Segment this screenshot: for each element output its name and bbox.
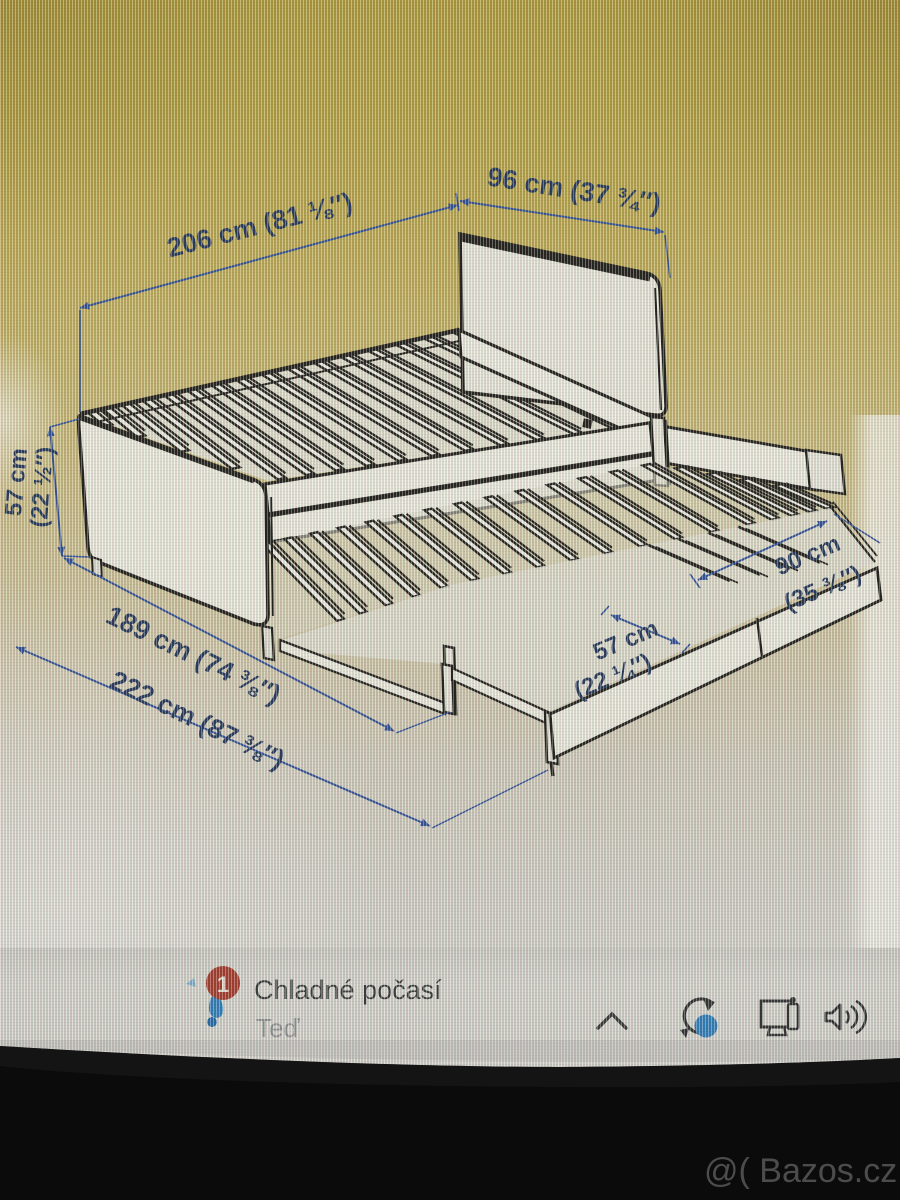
svg-text:@( Bazos.cz: @( Bazos.cz [704,1152,897,1190]
